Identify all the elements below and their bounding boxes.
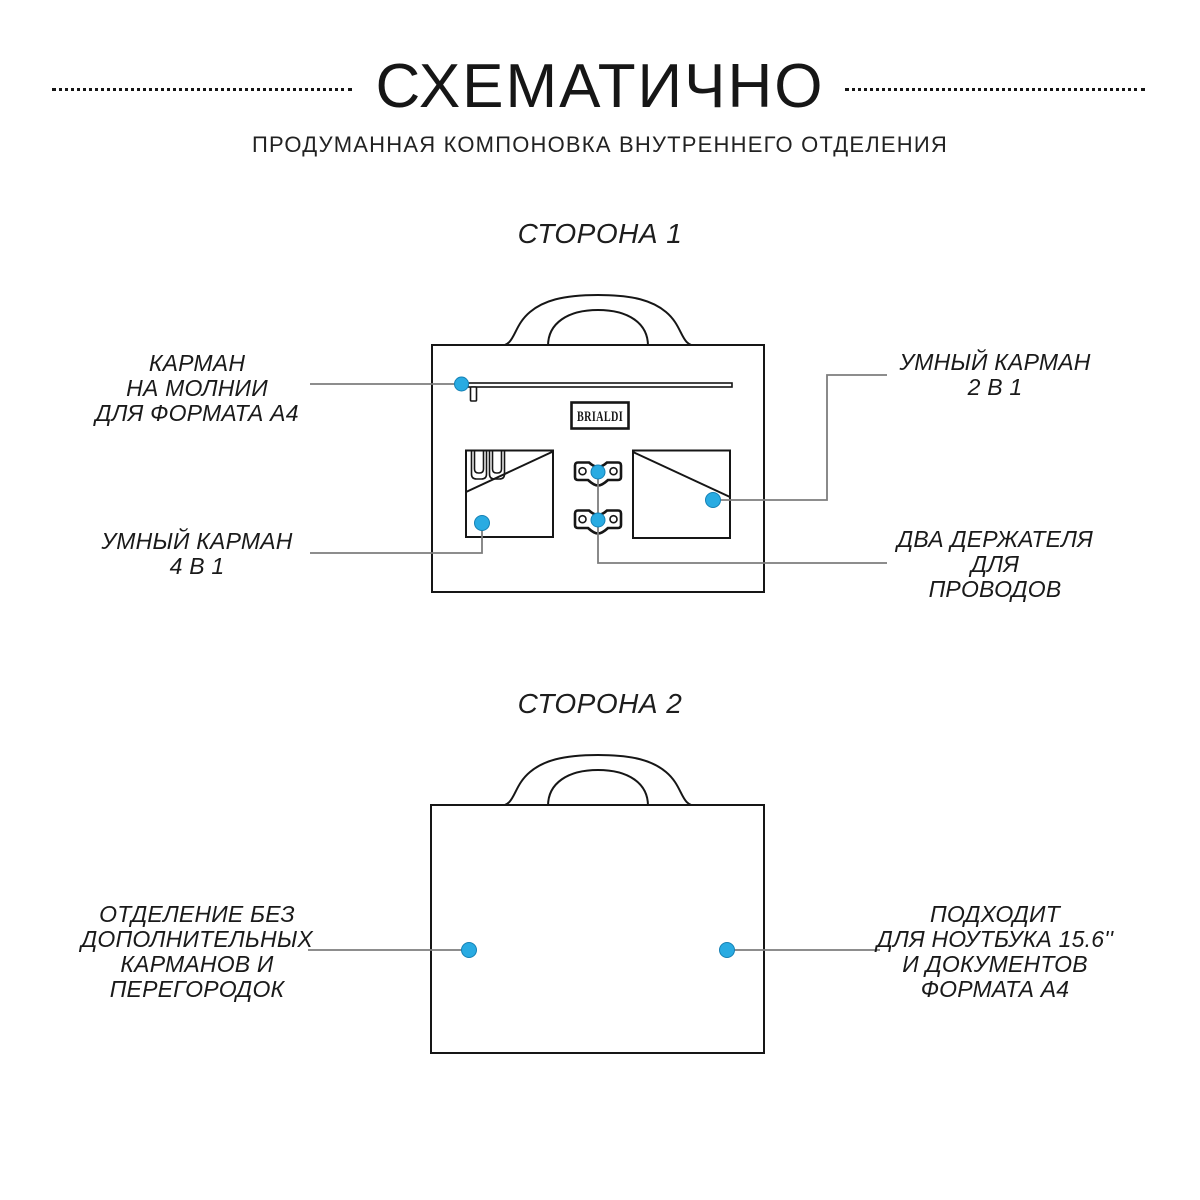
brand-logo-text: BRIALDI (577, 409, 623, 425)
callout-line: НА МОЛНИИ (47, 376, 347, 401)
callout-line: ДЛЯ ФОРМАТА А4 (47, 401, 347, 426)
callout-line: ДЛЯ (845, 552, 1145, 577)
callout-line: 2 В 1 (845, 375, 1145, 400)
callout-line: ПРОВОДОВ (845, 577, 1145, 602)
callout-zip-pocket: КАРМАН НА МОЛНИИ ДЛЯ ФОРМАТА А4 (47, 351, 347, 426)
callout-line: УМНЫЙ КАРМАН (845, 350, 1145, 375)
side1-heading: СТОРОНА 1 (0, 218, 1200, 250)
callout-line: ДОПОЛНИТЕЛЬНЫХ (47, 927, 347, 952)
callout-line: КАРМАН (47, 351, 347, 376)
callout-line: 4 В 1 (47, 554, 347, 579)
callout-smart-4in1: УМНЫЙ КАРМАН 4 В 1 (47, 529, 347, 579)
zipper-track (468, 383, 732, 387)
callout-line: ПОДХОДИТ (845, 902, 1145, 927)
bag-handle-outer (499, 295, 697, 346)
bag-handle-outer (499, 755, 697, 806)
bag-diagram-side2 (405, 740, 795, 1070)
schematic-page: СХЕМАТИЧНО ПРОДУМАННАЯ КОМПОНОВКА ВНУТРЕ… (0, 0, 1200, 1200)
bag-handle-inner (548, 770, 648, 806)
callout-empty-compartment: ОТДЕЛЕНИЕ БЕЗ ДОПОЛНИТЕЛЬНЫХ КАРМАНОВ И … (47, 902, 347, 1002)
callout-line: ДВА ДЕРЖАТЕЛЯ (845, 527, 1145, 552)
callout-smart-2in1: УМНЫЙ КАРМАН 2 В 1 (845, 350, 1145, 400)
callout-line: ОТДЕЛЕНИЕ БЕЗ (47, 902, 347, 927)
callout-line: ДЛЯ НОУТБУКА 15.6'' (845, 927, 1145, 952)
zipper-pull (471, 387, 477, 401)
smart-pocket-4in1 (466, 451, 553, 538)
side2-heading: СТОРОНА 2 (0, 688, 1200, 720)
bag-body-outline (431, 805, 764, 1053)
callout-line: ФОРМАТА А4 (845, 977, 1145, 1002)
callout-line: КАРМАНОВ И (47, 952, 347, 977)
bag-diagram-side1: BRIALDI (405, 280, 795, 610)
callout-line: ПЕРЕГОРОДОК (47, 977, 347, 1002)
bag-handle-inner (548, 310, 648, 346)
page-title: СХЕМАТИЧНО (0, 56, 1200, 118)
callout-line: УМНЫЙ КАРМАН (47, 529, 347, 554)
smart-pocket-2in1 (633, 451, 730, 539)
page-subtitle: ПРОДУМАННАЯ КОМПОНОВКА ВНУТРЕННЕГО ОТДЕЛ… (0, 132, 1200, 158)
callout-cable-holders: ДВА ДЕРЖАТЕЛЯ ДЛЯ ПРОВОДОВ (845, 527, 1145, 602)
callout-laptop-fit: ПОДХОДИТ ДЛЯ НОУТБУКА 15.6'' И ДОКУМЕНТО… (845, 902, 1145, 1002)
callout-line: И ДОКУМЕНТОВ (845, 952, 1145, 977)
